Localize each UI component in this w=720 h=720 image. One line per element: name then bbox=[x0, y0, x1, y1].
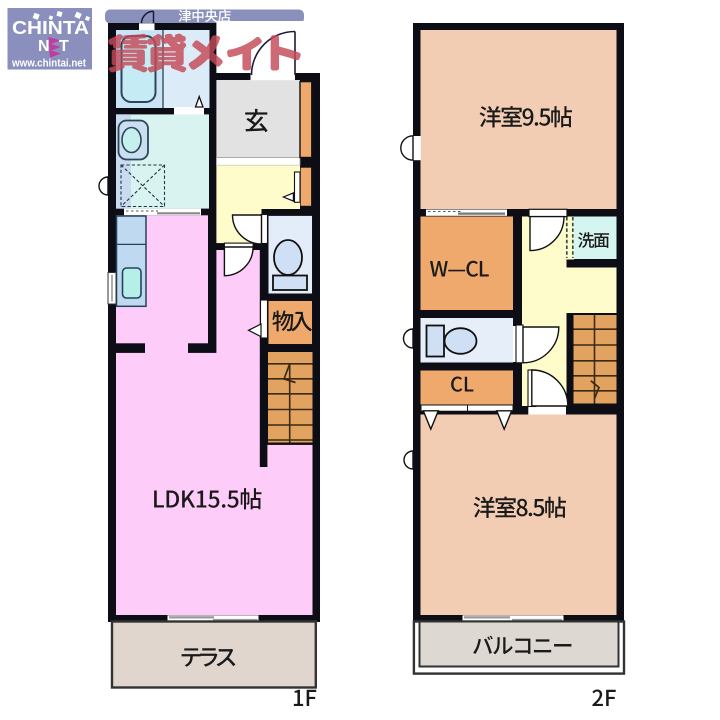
svg-text:洋室9.5帖: 洋室9.5帖 bbox=[479, 98, 573, 132]
svg-text:洋室8.5帖: 洋室8.5帖 bbox=[473, 489, 567, 523]
svg-text:T: T bbox=[59, 38, 69, 55]
svg-text:N: N bbox=[38, 38, 50, 55]
svg-text:賃貸メイト: 賃貸メイト bbox=[107, 24, 301, 82]
svg-text:物入: 物入 bbox=[272, 305, 313, 337]
svg-text:2F: 2F bbox=[592, 681, 617, 713]
svg-text:玄: 玄 bbox=[244, 102, 269, 138]
svg-text:1F: 1F bbox=[292, 681, 317, 713]
svg-text:バルコニー: バルコニー bbox=[472, 629, 572, 660]
svg-text:テラス: テラス bbox=[179, 639, 235, 673]
svg-text:www.chintai.net: www.chintai.net bbox=[11, 58, 86, 70]
svg-text:CHINTA: CHINTA bbox=[12, 18, 89, 38]
svg-text:CL: CL bbox=[450, 369, 474, 398]
svg-text:W—CL: W—CL bbox=[430, 254, 490, 284]
svg-text:LDK15.5帖: LDK15.5帖 bbox=[152, 481, 263, 515]
svg-text:洗面: 洗面 bbox=[578, 227, 610, 252]
